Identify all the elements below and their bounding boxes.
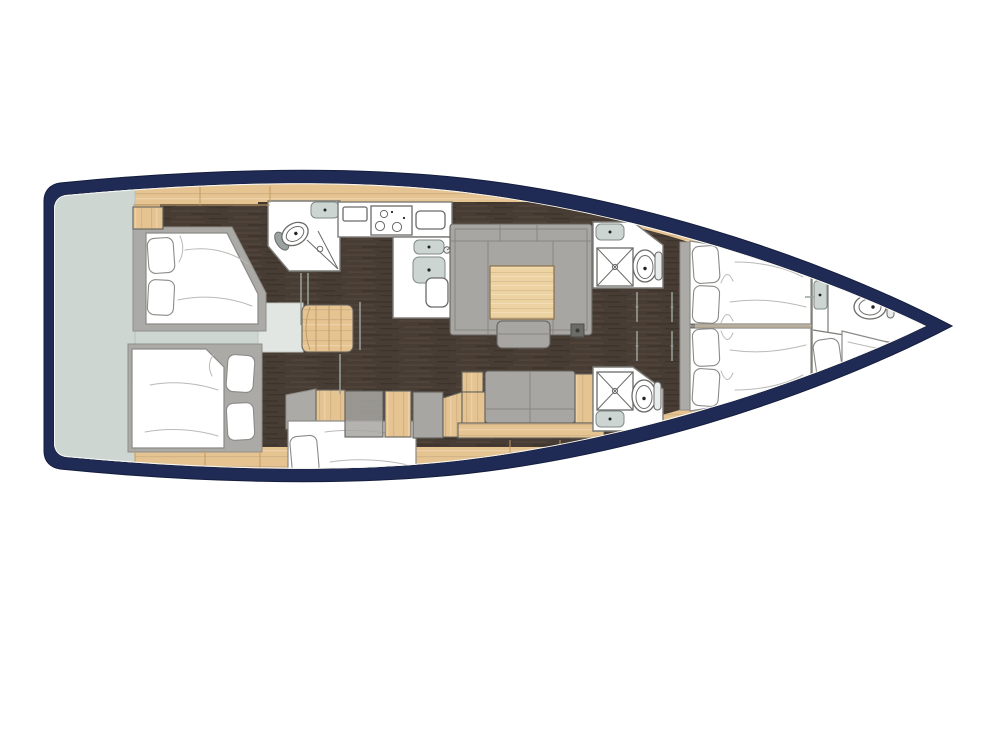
pillow <box>226 402 255 440</box>
pillow <box>692 245 721 284</box>
toilet-icon <box>632 380 661 412</box>
bed <box>132 349 224 448</box>
swim-platform <box>54 188 135 462</box>
salon-table <box>490 266 554 319</box>
pillow <box>692 328 720 366</box>
mast-post <box>571 324 584 337</box>
pillow <box>147 279 175 315</box>
floor-plan-canvas <box>0 0 993 745</box>
shower-icon <box>597 372 633 410</box>
sink-icon <box>596 224 624 240</box>
pillow <box>692 285 720 323</box>
pillow <box>226 354 256 393</box>
toilet-icon <box>633 250 662 282</box>
pillow <box>692 368 721 407</box>
salon-stool <box>497 321 550 348</box>
stove-icon <box>371 206 412 235</box>
yacht-floor-plan <box>0 0 993 745</box>
aft-cabin-port <box>128 344 262 452</box>
sink-icon <box>311 202 339 218</box>
sink-icon <box>596 411 624 427</box>
bench-plinth <box>458 423 604 438</box>
shower-icon <box>597 248 633 286</box>
pillow <box>147 237 175 274</box>
companionway-stairs <box>302 305 353 352</box>
